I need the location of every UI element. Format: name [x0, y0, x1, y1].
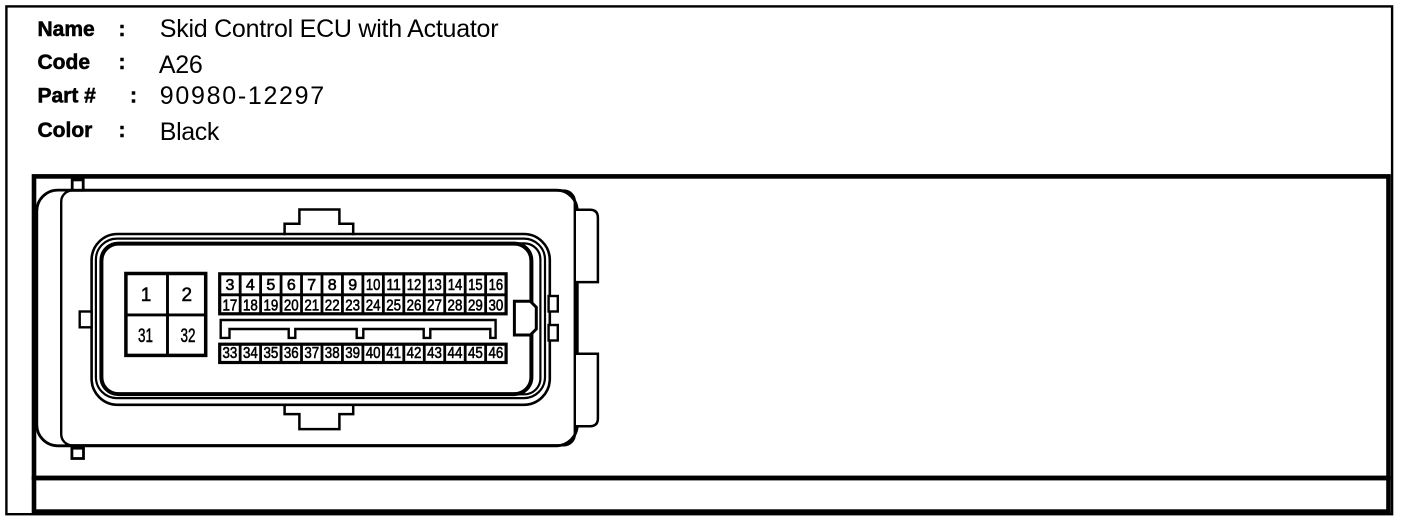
svg-text:22: 22 — [325, 298, 340, 315]
svg-text:A26: A26 — [159, 51, 203, 79]
svg-text::: : — [119, 51, 126, 74]
svg-text:11: 11 — [386, 277, 401, 294]
svg-text:Skid Control ECU with Actuator: Skid Control ECU with Actuator — [160, 15, 498, 43]
svg-text:21: 21 — [304, 298, 319, 315]
svg-text:25: 25 — [386, 298, 401, 315]
svg-text:29: 29 — [468, 298, 483, 315]
svg-text:30: 30 — [488, 298, 503, 315]
svg-text:17: 17 — [223, 298, 238, 315]
svg-text:8: 8 — [328, 277, 337, 294]
svg-text:41: 41 — [386, 345, 401, 362]
svg-text:40: 40 — [366, 345, 381, 362]
svg-text:37: 37 — [304, 345, 319, 362]
svg-text:42: 42 — [407, 345, 422, 362]
svg-text:90980-12297: 90980-12297 — [160, 82, 326, 110]
svg-text:15: 15 — [468, 277, 483, 294]
svg-text::: : — [119, 18, 126, 41]
svg-text:39: 39 — [345, 345, 360, 362]
svg-text:43: 43 — [427, 345, 442, 362]
svg-text:19: 19 — [263, 298, 278, 315]
svg-text:16: 16 — [489, 277, 504, 294]
svg-text:28: 28 — [448, 298, 463, 315]
svg-text:4: 4 — [246, 277, 255, 294]
svg-text:13: 13 — [427, 277, 442, 294]
svg-text:18: 18 — [243, 298, 258, 315]
svg-text:23: 23 — [345, 298, 360, 315]
svg-text:1: 1 — [141, 285, 152, 306]
svg-text:45: 45 — [468, 345, 483, 362]
svg-text:35: 35 — [263, 345, 278, 362]
svg-text:34: 34 — [243, 345, 258, 362]
svg-text:9: 9 — [348, 277, 357, 294]
svg-text:38: 38 — [325, 345, 340, 362]
svg-text:7: 7 — [307, 277, 316, 294]
svg-text:20: 20 — [284, 298, 299, 315]
svg-text:33: 33 — [223, 345, 238, 362]
svg-text:5: 5 — [266, 277, 275, 294]
svg-text:31: 31 — [138, 326, 153, 347]
svg-text:44: 44 — [448, 345, 463, 362]
svg-text:10: 10 — [366, 277, 381, 294]
svg-text:12: 12 — [407, 277, 422, 294]
svg-text:Name: Name — [38, 18, 95, 41]
svg-text:36: 36 — [284, 345, 299, 362]
svg-text::: : — [130, 85, 137, 108]
svg-text:Color: Color — [38, 119, 93, 142]
svg-text::: : — [119, 119, 126, 142]
svg-text:Code: Code — [38, 51, 91, 74]
svg-text:24: 24 — [366, 298, 381, 315]
svg-text:14: 14 — [448, 277, 463, 294]
svg-text:2: 2 — [182, 285, 193, 306]
svg-text:Black: Black — [160, 118, 220, 146]
svg-text:3: 3 — [225, 277, 234, 294]
svg-text:26: 26 — [407, 298, 422, 315]
svg-text:Part #: Part # — [38, 85, 97, 108]
svg-text:32: 32 — [181, 326, 196, 347]
svg-text:46: 46 — [488, 345, 503, 362]
svg-text:6: 6 — [287, 277, 296, 294]
svg-text:27: 27 — [427, 298, 442, 315]
